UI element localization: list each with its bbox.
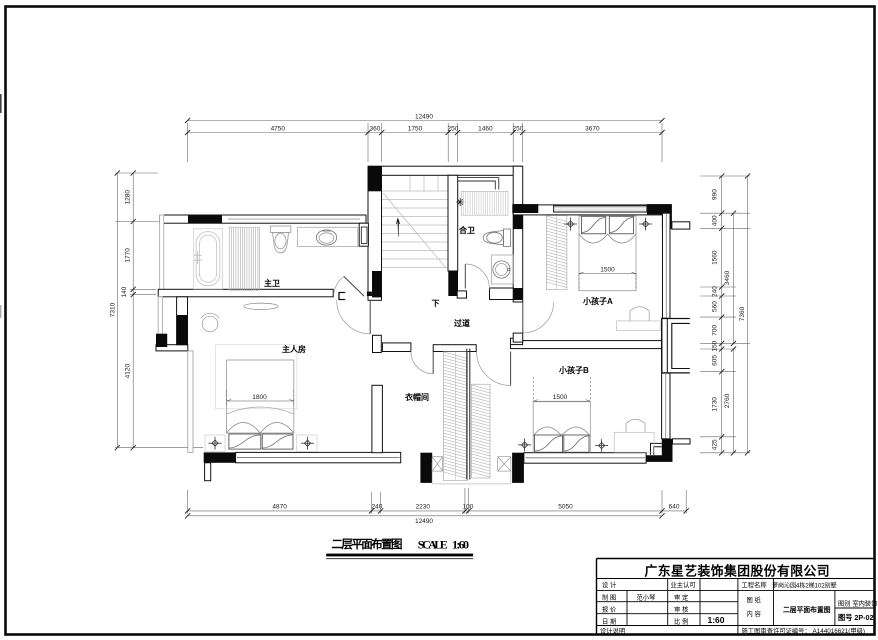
svg-text:140: 140: [121, 286, 128, 297]
svg-text:二层平面布置图: 二层平面布置图: [332, 537, 403, 551]
svg-text:1280: 1280: [125, 190, 132, 205]
svg-text:100: 100: [463, 504, 474, 511]
svg-text:250: 250: [447, 126, 458, 133]
svg-text:设计说明: 设计说明: [600, 626, 625, 635]
svg-text:990: 990: [712, 189, 719, 200]
svg-text:审 定: 审 定: [674, 593, 689, 602]
svg-text:主卫: 主卫: [264, 278, 280, 288]
svg-text:12490: 12490: [415, 518, 433, 525]
svg-text:1800: 1800: [252, 394, 267, 401]
svg-text:广东星艺装饰集团股份有限公司: 广东星艺装饰集团股份有限公司: [645, 564, 830, 579]
svg-text:合卫: 合卫: [458, 225, 475, 235]
svg-text:比 例: 比 例: [674, 617, 688, 626]
svg-text:施工图审查许可证编号： A144016621(甲级): 施工图审查许可证编号： A144016621(甲级): [742, 626, 866, 635]
svg-text:SCALE: SCALE: [418, 538, 448, 552]
svg-text:1500: 1500: [600, 267, 615, 274]
svg-text:1730: 1730: [712, 397, 719, 412]
svg-text:图号 2P-02: 图号 2P-02: [838, 613, 874, 622]
svg-text:1:60: 1:60: [708, 615, 725, 625]
svg-text:主人房: 主人房: [282, 344, 306, 354]
svg-text:425: 425: [712, 439, 719, 450]
svg-text:下: 下: [432, 299, 440, 308]
svg-text:1770: 1770: [125, 248, 132, 263]
svg-text:7310: 7310: [110, 302, 117, 317]
svg-text:5050: 5050: [558, 504, 573, 511]
svg-text:400: 400: [712, 215, 719, 226]
svg-text:250: 250: [512, 126, 523, 133]
svg-text:240: 240: [372, 504, 383, 511]
svg-text:1750: 1750: [408, 126, 423, 133]
svg-text:衣帽间: 衣帽间: [405, 392, 429, 402]
svg-text:4750: 4750: [271, 126, 286, 133]
svg-text:审 核: 审 核: [674, 605, 689, 614]
svg-text:1500: 1500: [553, 394, 568, 401]
svg-text:3670: 3670: [585, 126, 600, 133]
svg-text:700: 700: [712, 324, 719, 335]
svg-text:范小琴: 范小琴: [637, 593, 657, 602]
svg-text:2760: 2760: [724, 393, 731, 408]
svg-text:2230: 2230: [416, 504, 431, 511]
svg-text:内 容: 内 容: [747, 609, 762, 618]
svg-text:640: 640: [669, 504, 680, 511]
svg-text:小孩子A: 小孩子A: [582, 296, 613, 306]
svg-text:过道: 过道: [454, 318, 470, 328]
svg-text:560: 560: [712, 301, 719, 312]
svg-text:1460: 1460: [478, 126, 493, 133]
svg-text:7360: 7360: [739, 306, 746, 321]
svg-text:12490: 12490: [415, 114, 433, 121]
svg-text:图 纸: 图 纸: [747, 595, 762, 604]
svg-text:小孩子B: 小孩子B: [558, 365, 589, 375]
svg-text:日 期: 日 期: [602, 618, 616, 626]
svg-text:制 图: 制 图: [602, 593, 616, 602]
svg-text:150: 150: [712, 340, 719, 351]
svg-text:3460: 3460: [724, 270, 731, 285]
svg-text:1:60: 1:60: [452, 538, 469, 552]
svg-text:工程名称: 工程名称: [742, 580, 768, 589]
svg-text:360: 360: [369, 126, 380, 133]
svg-text:240: 240: [712, 286, 719, 297]
svg-text:图别 室内装饰: 图别 室内装饰: [838, 599, 878, 608]
svg-text:业主认可: 业主认可: [671, 580, 696, 589]
svg-text:二层平面布置图: 二层平面布置图: [783, 605, 831, 614]
svg-text:设 计: 设 计: [602, 580, 617, 589]
svg-text:萝岗沁园4栋2梯102别墅: 萝岗沁园4栋2梯102别墅: [772, 582, 837, 590]
svg-text:605: 605: [712, 355, 719, 366]
svg-text:报 价: 报 价: [602, 605, 617, 614]
svg-text:4870: 4870: [272, 504, 287, 511]
svg-text:1560: 1560: [712, 250, 719, 265]
svg-text:4120: 4120: [125, 363, 132, 378]
